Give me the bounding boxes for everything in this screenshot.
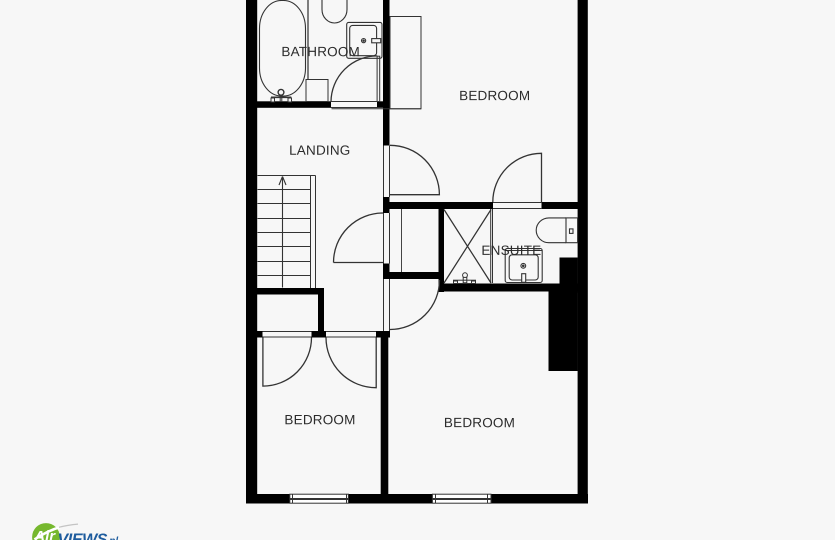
svg-text:BEDROOM: BEDROOM [459,88,530,103]
svg-text:VIEWS: VIEWS [58,532,108,540]
svg-text:BEDROOM: BEDROOM [444,415,515,430]
svg-text:LANDING: LANDING [289,143,350,158]
svg-text:BATHROOM: BATHROOM [281,44,360,59]
svg-text:.nl: .nl [107,536,119,540]
svg-text:ENSUITE: ENSUITE [481,243,541,258]
svg-text:BEDROOM: BEDROOM [284,412,355,427]
